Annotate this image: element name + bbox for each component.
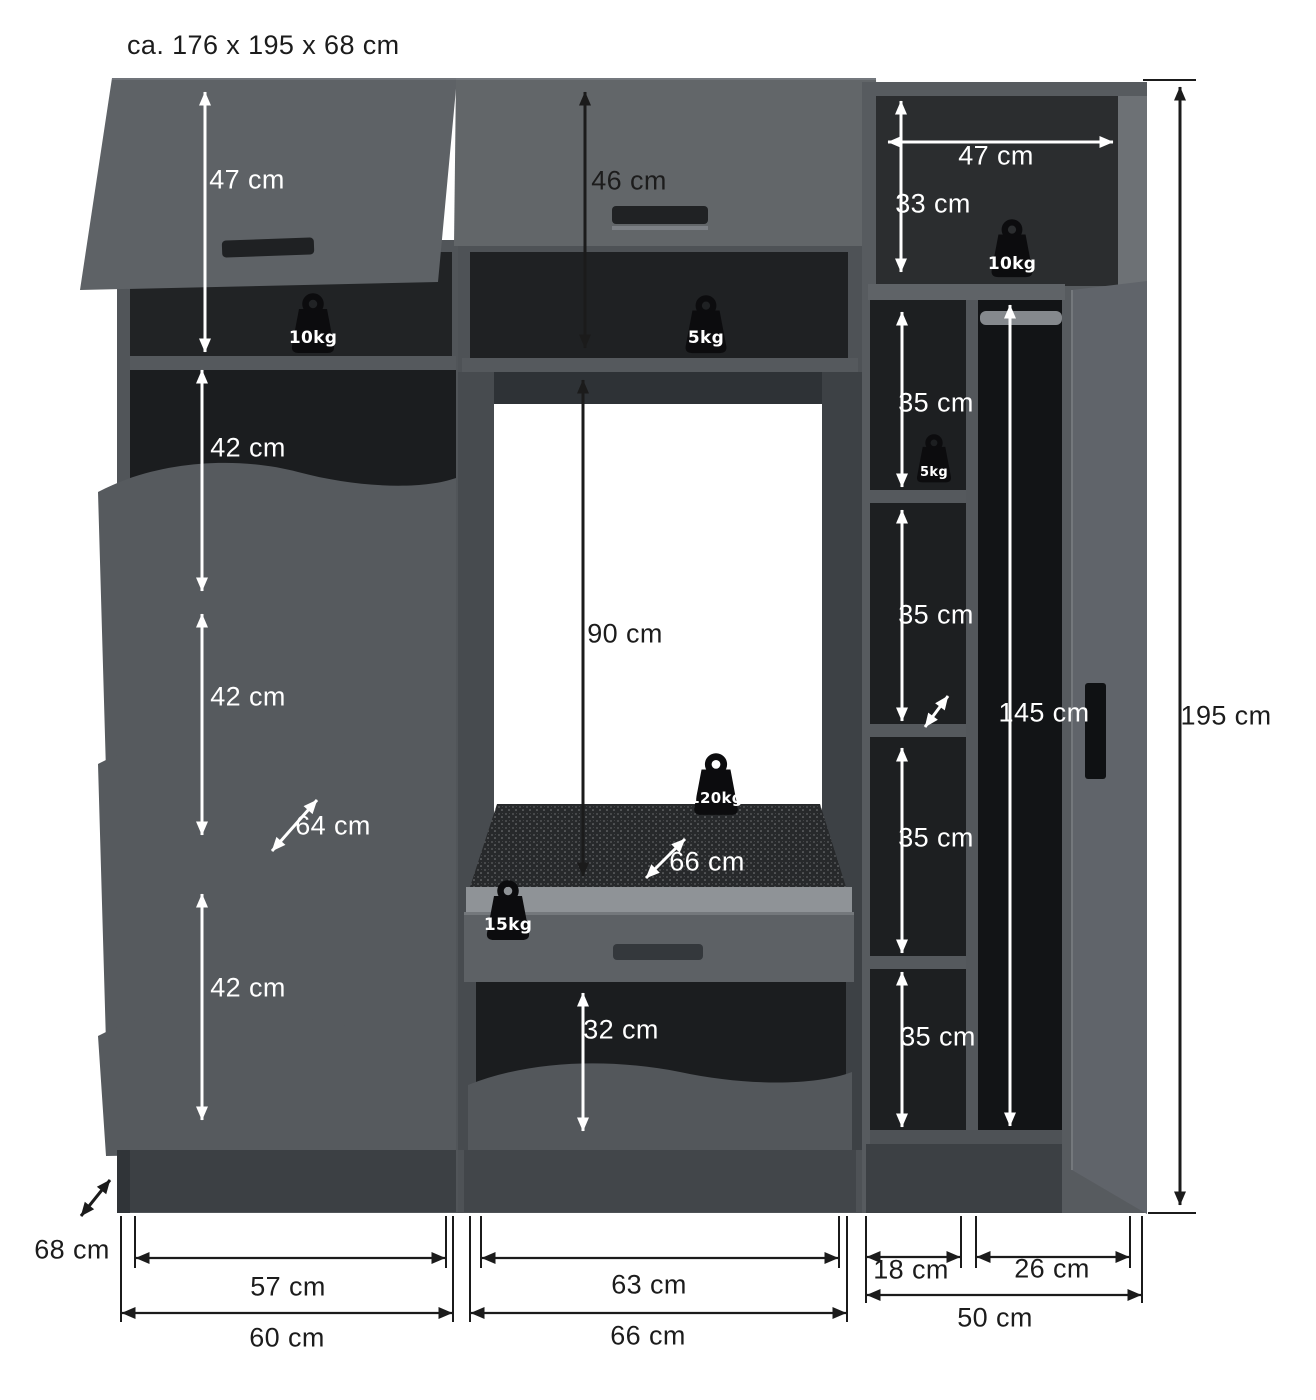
dim-label-wardrobe-col-width: 26 cm: [1014, 1256, 1090, 1283]
dim-label-middle-bottom: 32 cm: [583, 1017, 659, 1044]
dim-label-right-comp-4: 35 cm: [900, 1024, 976, 1051]
right-top-side-panel: [1118, 96, 1147, 286]
furniture-dimension-diagram: ca. 176 x 195 x 68 cm 47 cm 46 cm 47 cm …: [0, 0, 1316, 1400]
middle-plinth: [464, 1150, 856, 1212]
middle-lintel: [470, 372, 848, 404]
weight-label: 10kg: [282, 328, 344, 348]
dim-label-left-comp-2: 42 cm: [210, 684, 286, 711]
dim-label-seat-depth: 66 cm: [669, 849, 745, 876]
diagram-title: ca. 176 x 195 x 68 cm: [127, 30, 400, 61]
dim-label-left-outer-width: 60 cm: [249, 1325, 325, 1352]
dim-label-left-inner-width: 57 cm: [250, 1274, 326, 1301]
dim-label-left-flap-height: 47 cm: [209, 167, 285, 194]
middle-shelf: [462, 358, 858, 372]
middle-cabinet: [454, 78, 879, 1213]
left-tipper-1: [98, 463, 456, 771]
right-shelf-3: [870, 956, 966, 969]
dim-label-hanging-height: 145 cm: [999, 700, 1090, 727]
weight-label: 120kg: [683, 789, 749, 807]
weight-icon-left-flap: 10kg: [282, 292, 344, 356]
dim-label-right-comp-3: 35 cm: [898, 825, 974, 852]
left-flap-handle: [222, 237, 315, 257]
dim-label-right-top-height: 33 cm: [895, 191, 971, 218]
middle-top-compartment-interior: [470, 252, 848, 358]
dim-label-left-comp-1: 42 cm: [210, 435, 286, 462]
weight-label: 5kg: [676, 328, 736, 348]
right-plinth: [866, 1144, 1062, 1213]
weight-icon-seat: 120kg: [683, 753, 749, 817]
right-center-divider: [966, 300, 978, 1144]
right-shelf-2: [870, 724, 966, 737]
weight-label: 5kg: [909, 465, 959, 480]
dim-label-middle-opening: 90 cm: [587, 621, 663, 648]
weight-icon-drawer: 15kg: [477, 879, 539, 943]
right-divider-shelf: [868, 284, 1065, 300]
dim-label-right-top-width: 47 cm: [958, 143, 1034, 170]
dim-label-middle-outer-width: 66 cm: [610, 1323, 686, 1350]
dim-label-left-comp-3: 42 cm: [210, 975, 286, 1002]
dim-label-right-comp-2: 35 cm: [898, 602, 974, 629]
left-shelf: [130, 356, 456, 370]
right-shelf-column-interior: [870, 300, 966, 1144]
dim-label-right-outer-width: 50 cm: [957, 1305, 1033, 1332]
middle-seat-mat: [470, 804, 846, 887]
left-plinth: [128, 1150, 456, 1212]
dim-label-middle-inner-width: 63 cm: [611, 1272, 687, 1299]
weight-label: 10kg: [982, 254, 1042, 274]
weight-icon-right-top: 10kg: [982, 216, 1042, 282]
weight-label: 15kg: [477, 915, 539, 935]
dim-label-middle-flap-height: 46 cm: [591, 168, 667, 195]
dim-label-depth: 68 cm: [34, 1237, 110, 1264]
dim-label-total-height: 195 cm: [1181, 703, 1272, 730]
weight-icon-middle-shelf: 5kg: [676, 294, 736, 356]
left-foot: [117, 1150, 130, 1213]
right-open-door: [1072, 281, 1147, 1214]
middle-flap-handle-shadow: [612, 226, 708, 230]
dim-label-left-diagonal: 64 cm: [295, 813, 371, 840]
right-shelf-1: [870, 490, 966, 503]
right-hanging-rail: [980, 311, 1062, 325]
diagram-drawing: [0, 0, 1316, 1400]
right-floor-shelf: [870, 1130, 1062, 1144]
arrow-depth-68: [81, 1180, 110, 1216]
middle-flap-handle: [612, 206, 708, 224]
kettlebell-icon: [683, 753, 749, 817]
weight-icon-right-shelf: 5kg: [909, 432, 959, 486]
middle-drawer-handle: [613, 944, 703, 960]
left-cabinet: [80, 78, 460, 1213]
dim-label-shelf-col-width: 18 cm: [873, 1257, 949, 1284]
dim-label-right-comp-1: 35 cm: [898, 390, 974, 417]
